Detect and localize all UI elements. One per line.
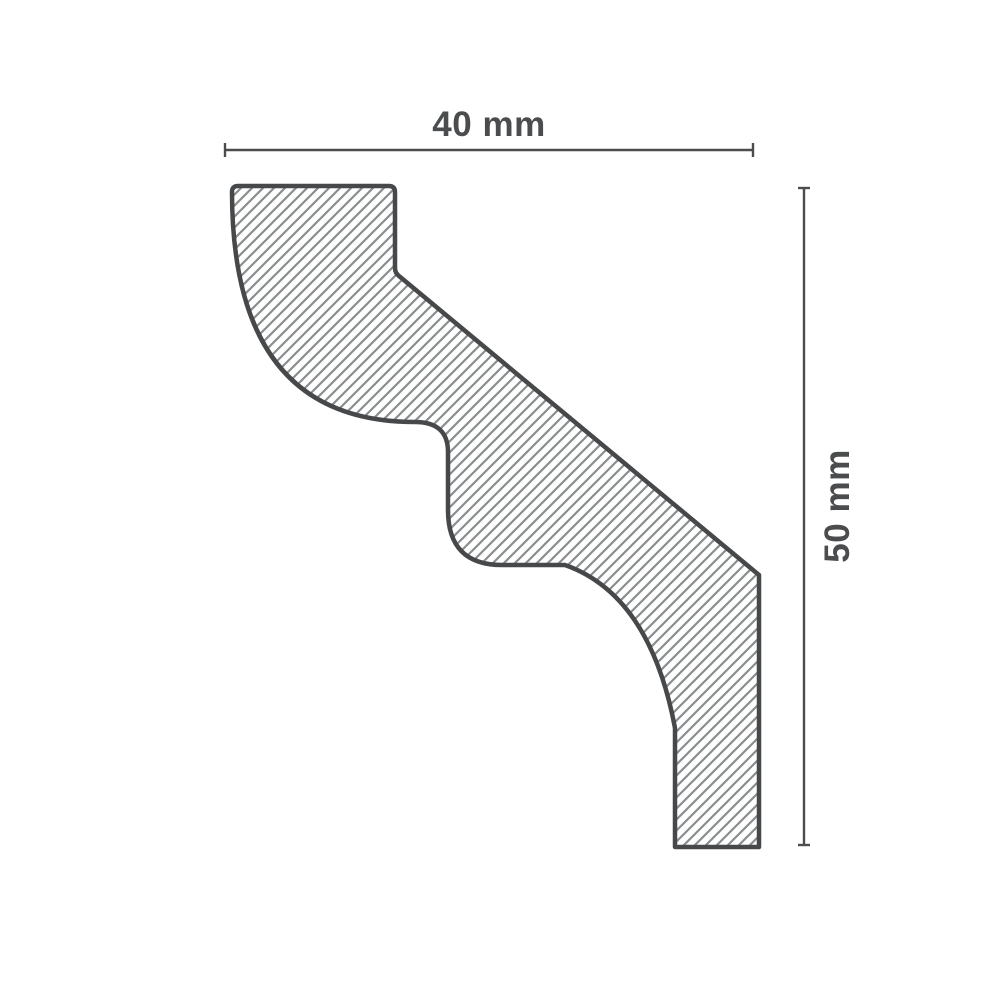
width-dimension-label: 40 mm: [432, 105, 545, 145]
height-dimension-line: [798, 188, 810, 845]
diagram-canvas: 40 mm 50 mm: [0, 0, 1000, 1000]
molding-profile-shape: [232, 186, 759, 847]
width-dimension-line: [225, 143, 753, 157]
height-dimension-label: 50 mm: [818, 449, 858, 562]
